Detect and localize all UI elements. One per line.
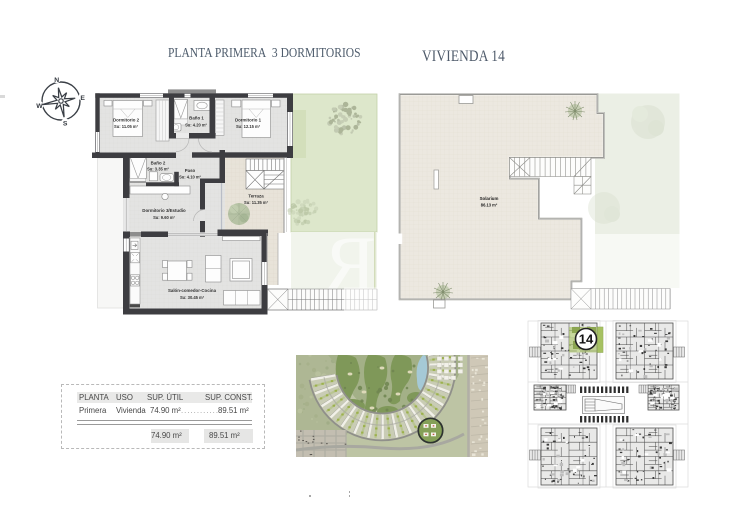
svg-text:Solarium: Solarium: [480, 196, 499, 201]
svg-text:Su: 4.10 m²: Su: 4.10 m²: [179, 175, 201, 180]
svg-text:Dormitorio 3/Estudio: Dormitorio 3/Estudio: [142, 208, 186, 213]
svg-text:N: N: [54, 77, 59, 84]
svg-text:W: W: [36, 103, 43, 110]
svg-text:86.13 m²: 86.13 m²: [481, 203, 498, 208]
svg-text:Su: 30.45 m²: Su: 30.45 m²: [180, 295, 205, 300]
svg-text:S: S: [63, 121, 68, 128]
svg-text:Paso: Paso: [185, 168, 196, 173]
svg-text:Terraza: Terraza: [248, 194, 264, 199]
svg-text:Su: 3.35 m²: Su: 3.35 m²: [147, 167, 169, 172]
svg-text:Su: 11.05 m²: Su: 11.05 m²: [114, 124, 139, 129]
svg-text:Baño 2: Baño 2: [151, 161, 166, 166]
svg-text:Salón-comedor-Cocina: Salón-comedor-Cocina: [168, 288, 217, 293]
svg-text:Dormitorio 1: Dormitorio 1: [235, 118, 262, 123]
svg-text:14: 14: [579, 332, 594, 347]
svg-text:Dormitorio 2: Dormitorio 2: [113, 118, 140, 123]
svg-text:Su: 9.60 m²: Su: 9.60 m²: [153, 215, 175, 220]
svg-text:Baño 1: Baño 1: [189, 116, 204, 121]
svg-text:Su: 11.35 m²: Su: 11.35 m²: [244, 200, 269, 205]
svg-text:Su: 12.15 m²: Su: 12.15 m²: [236, 124, 261, 129]
svg-text:Su: 4.20 m²: Su: 4.20 m²: [185, 123, 207, 128]
